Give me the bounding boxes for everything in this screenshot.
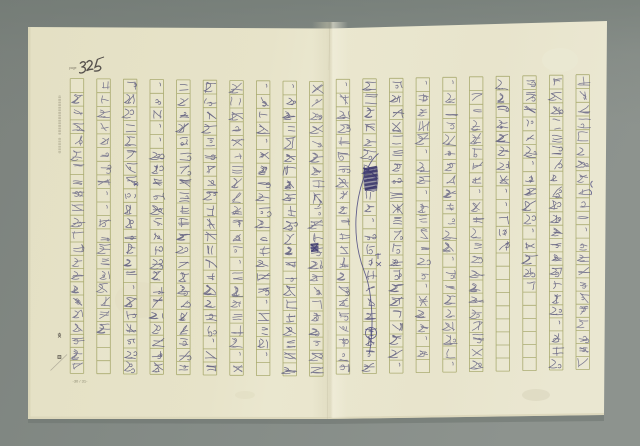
svg-text:-30 / 31-: -30 / 31- xyxy=(73,379,89,384)
svg-text:page: page xyxy=(69,66,77,70)
